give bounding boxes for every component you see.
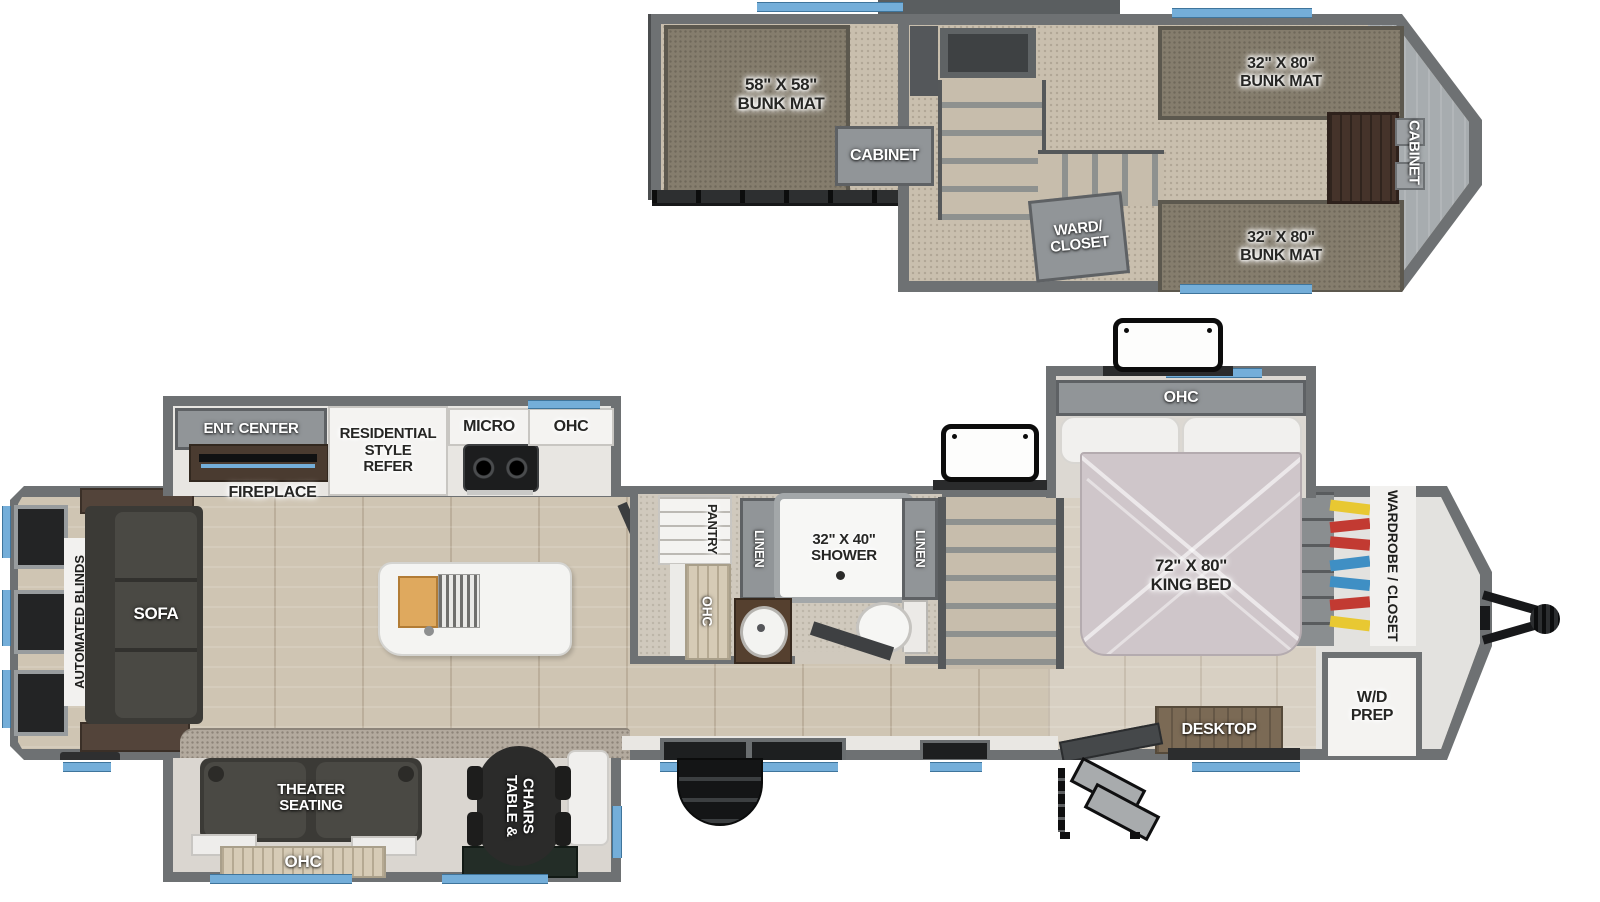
shower-label: 32" X 40" SHOWER: [811, 532, 877, 565]
loft-stairs: [938, 80, 1046, 220]
rear-window-accent-1: [2, 506, 11, 558]
hitch-mount: [1480, 606, 1490, 630]
microwave: MICRO: [448, 408, 530, 446]
ent-center-label: ENT. CENTER: [203, 421, 298, 438]
refrigerator: RESIDENTIAL STYLE REFER: [328, 406, 448, 496]
soundbar: [199, 454, 317, 462]
dining-chair: [467, 812, 483, 846]
linen-left-label: LINEN: [752, 530, 766, 568]
range-cooktop: [463, 444, 539, 492]
main-stairs: [938, 497, 1064, 669]
clothes-item: [1329, 556, 1370, 572]
pantry-ohc-label: OHC: [695, 584, 719, 638]
desktop-label: DESKTOP: [1182, 721, 1257, 739]
bunk-mat-58-label: 58" X 58" BUNK MAT: [676, 70, 886, 120]
sofa: SOFA: [85, 506, 203, 724]
loft-ward-closet: WARD/ CLOSET: [1028, 191, 1130, 282]
island-faucet-icon: [424, 626, 434, 636]
sink-drainer: [438, 574, 480, 628]
pantry: PANTRY: [658, 495, 732, 565]
theater-window-right: [442, 874, 548, 884]
bedroom-tv: [1113, 318, 1223, 372]
soundbar-accent: [201, 464, 315, 468]
bench-seat: [567, 750, 609, 846]
refrigerator-label: RESIDENTIAL STYLE REFER: [340, 426, 437, 476]
bunk-mat-bottom: 32" X 80" BUNK MAT: [1158, 200, 1404, 294]
loft-railing: [652, 190, 914, 206]
desktop-mat: [1168, 748, 1300, 760]
loft-cabinet-front-label: CABINET: [1396, 94, 1430, 210]
pantry-label: PANTRY: [700, 499, 724, 559]
king-bed-label: 72" X 80" KING BED: [1121, 554, 1261, 598]
rear-window-3: [14, 670, 68, 736]
theater-armrest-icon: [208, 766, 224, 782]
stairs-tv: [941, 424, 1039, 482]
bunk-mat-bottom-label: 32" X 80" BUNK MAT: [1240, 229, 1322, 264]
floorplan-diagram: 58" X 58" BUNK MAT WARD/ CLOSET 32" X 80…: [0, 0, 1600, 902]
loft-window-bottom: [1180, 284, 1312, 294]
bath-counter-sliver: [670, 564, 685, 656]
bottom-accent-bedroom: [1192, 762, 1300, 772]
loft-slide-window: [757, 2, 903, 12]
loft-body: WARD/ CLOSET 32" X 80" BUNK MAT 32" X 80…: [898, 12, 1486, 294]
rear-window-2: [14, 590, 68, 654]
dining-chair: [555, 812, 571, 846]
cutting-board: [398, 576, 438, 628]
kitchen-slide: ENT. CENTER RESIDENTIAL STYLE REFER MICR…: [163, 396, 621, 496]
desktop-desk: DESKTOP: [1155, 706, 1283, 754]
dining-table-label: TABLE & CHAIRS: [491, 756, 547, 856]
wardrobe-label-strip: WARDROBE / CLOSET: [1370, 486, 1416, 646]
entry-steps-round: [677, 758, 763, 826]
kitchen-slide-window: [528, 400, 600, 409]
bath-faucet-icon: [757, 624, 765, 632]
kitchen-ohc-label: OHC: [554, 418, 589, 436]
hitch-arm-bottom: [1482, 620, 1538, 644]
bath-sink: [740, 606, 788, 658]
microwave-label: MICRO: [463, 418, 515, 436]
bunk-mat-top: 32" X 80" BUNK MAT: [1158, 26, 1404, 120]
wd-prep-room: W/D PREP: [1322, 652, 1422, 762]
linen-right-label: LINEN: [913, 530, 927, 568]
loft-cabinet-mid-label: CABINET: [850, 147, 919, 165]
wardrobe-clothes: [1328, 500, 1374, 646]
media-console: [189, 444, 329, 482]
loft-nightstand: [1327, 112, 1399, 204]
theater-window-left: [210, 874, 352, 884]
clothes-item: [1329, 616, 1370, 632]
theater-armrest-icon: [398, 766, 414, 782]
theater-seats: THEATER SEATING: [200, 758, 422, 842]
rear-window-1: [14, 505, 68, 569]
sofa-label: SOFA: [113, 602, 199, 626]
bottom-window-small: [920, 740, 990, 762]
bunk-mat-top-label: 32" X 80" BUNK MAT: [1240, 55, 1322, 90]
linen-left: LINEN: [740, 498, 778, 600]
hitch-arm-top: [1482, 590, 1538, 614]
hitch-pin: [1530, 604, 1560, 634]
kitchen-ohc: OHC: [528, 408, 614, 446]
kitchen-island: [378, 562, 572, 656]
bed-ohc-label: OHC: [1164, 389, 1199, 407]
dining-table: TABLE & CHAIRS: [477, 746, 561, 866]
king-bed: 72" X 80" KING BED: [1080, 452, 1302, 656]
step-rail: [1058, 768, 1065, 832]
shower-drain-icon: [836, 571, 845, 580]
loft-ward-closet-label: WARD/ CLOSET: [1048, 218, 1110, 257]
clothes-item: [1330, 536, 1371, 550]
loft-landing: [910, 26, 938, 96]
wardrobe-label: WARDROBE / CLOSET: [1385, 490, 1401, 642]
hitch: [1480, 590, 1584, 652]
theater-window-side: [612, 806, 622, 858]
step-foot: [1060, 832, 1070, 839]
dining-chair: [467, 766, 483, 800]
theater-ohc-label: OHC: [285, 853, 322, 872]
wd-prep-label: W/D PREP: [1351, 689, 1393, 724]
bed-ohc: OHC: [1056, 380, 1306, 416]
step-foot: [1130, 832, 1140, 839]
clothes-item: [1330, 596, 1371, 610]
fireplace-label: FIREPLACE: [205, 482, 340, 504]
loft-cabinet-mid: CABINET: [835, 126, 934, 186]
linen-right: LINEN: [902, 498, 938, 600]
entry-steps-fold: [1058, 766, 1154, 840]
pantry-ohc-cabinet: OHC: [685, 564, 731, 660]
clothes-item: [1330, 576, 1371, 591]
clothes-item: [1330, 518, 1371, 533]
shower: 32" X 40" SHOWER: [774, 493, 914, 603]
bathroom-block: PANTRY OHC LINEN 32" X 40" SHOWER LINEN: [630, 486, 950, 664]
rear-window-accent-3: [2, 670, 11, 728]
range-handle: [467, 490, 533, 495]
dining-chair: [555, 766, 571, 800]
loft-window-top: [1172, 8, 1312, 18]
sofa-console-bottom: [80, 722, 190, 752]
loft-landing-2-inner: [948, 34, 1028, 72]
rear-window-accent-2: [2, 590, 11, 646]
clothes-item: [1329, 500, 1370, 516]
bottom-accent-small: [930, 762, 982, 772]
theater-label: THEATER SEATING: [251, 776, 371, 820]
counter-theater: [180, 728, 630, 760]
bottom-accent-left: [63, 762, 111, 772]
